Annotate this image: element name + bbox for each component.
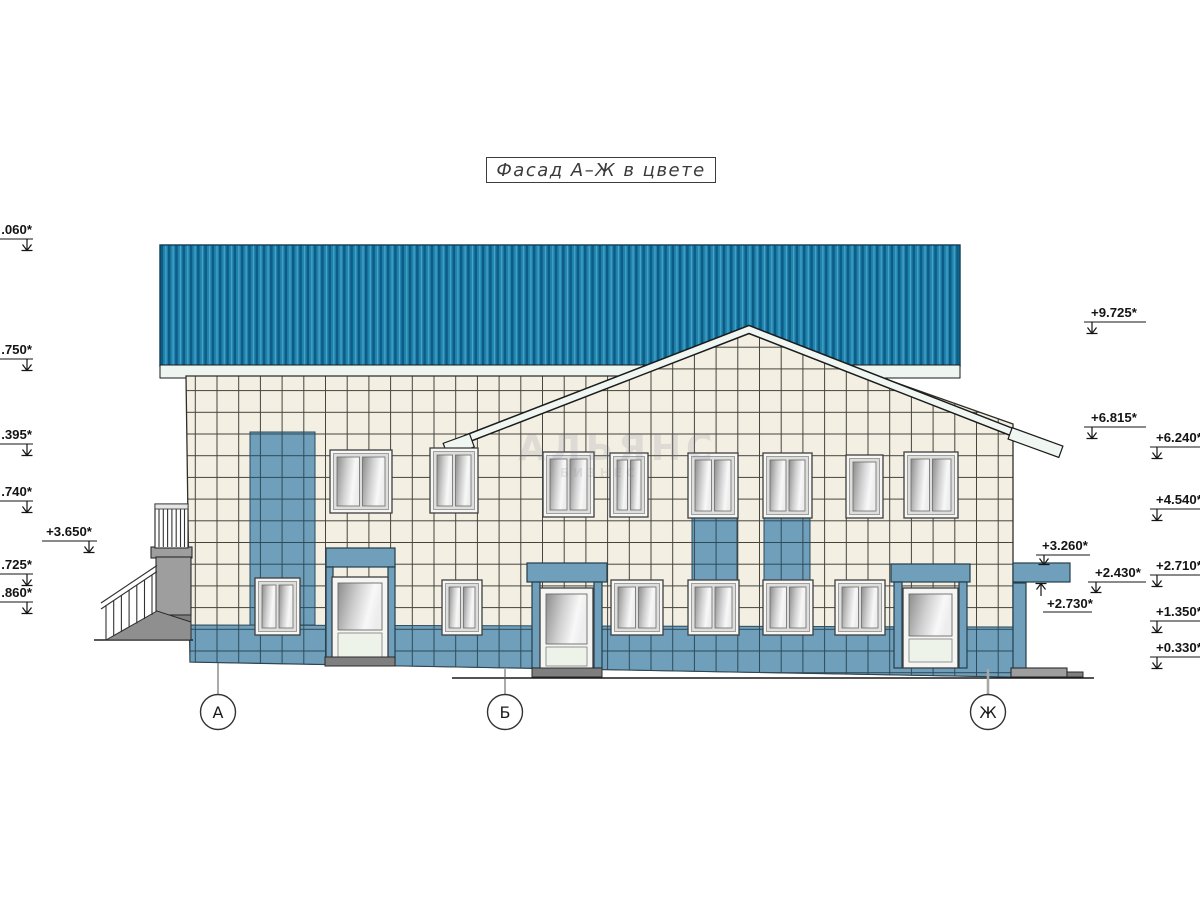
blue-strip-under-window-2 xyxy=(764,518,810,580)
elevation-marker-left-3: .395* xyxy=(0,427,33,456)
drawing-title-text: Фасад А–Ж в цвете xyxy=(496,160,705,181)
entrance-stairs-left xyxy=(94,504,193,640)
svg-text:+2.430*: +2.430* xyxy=(1095,565,1142,580)
elevation-marker-6815: +6.815* xyxy=(1084,410,1146,439)
elevation-marker-2730: +2.730* xyxy=(1036,584,1094,613)
elevation-marker-0330: +0.330* xyxy=(1150,640,1200,669)
rear-roof xyxy=(160,245,960,378)
window xyxy=(330,450,392,513)
elevation-marker-2710: +2.710* xyxy=(1150,558,1200,587)
svg-text:.060*: .060* xyxy=(1,222,33,237)
entrance-door-center xyxy=(540,588,593,672)
svg-text:+3.650*: +3.650* xyxy=(46,524,93,539)
window xyxy=(610,453,648,517)
ground-window xyxy=(763,580,813,635)
door-post xyxy=(894,582,902,668)
elevation-marker-2430: +2.430* xyxy=(1088,565,1146,593)
elevation-marker-left-1: .060* xyxy=(0,222,33,251)
ground-window xyxy=(611,580,663,635)
porch-landing-slab xyxy=(151,547,192,558)
ground-window xyxy=(688,580,739,635)
window xyxy=(763,453,812,518)
ground-window xyxy=(255,578,300,635)
svg-text:.395*: .395* xyxy=(1,427,33,442)
ground-window xyxy=(835,580,885,635)
svg-text:+6.815*: +6.815* xyxy=(1091,410,1138,425)
svg-text:.750*: .750* xyxy=(1,342,33,357)
door-post xyxy=(388,567,395,662)
facade-elevation-drawing: А Б Ж .060* .750* .395* .740* +3.650* .7… xyxy=(0,0,1200,900)
svg-text:Ж: Ж xyxy=(979,703,996,722)
door-post xyxy=(594,582,602,668)
elevation-marker-4540: +4.540* xyxy=(1150,492,1200,521)
corner-pilaster xyxy=(1013,583,1026,670)
elevation-marker-3650: +3.650* xyxy=(42,524,97,553)
drawing-title: Фасад А–Ж в цвете xyxy=(486,157,716,183)
ground-window xyxy=(442,580,482,635)
svg-text:.725*: .725* xyxy=(1,557,33,572)
elevation-marker-left-2: .750* xyxy=(0,342,33,371)
entrance-door-left xyxy=(332,577,388,663)
door-threshold xyxy=(532,668,602,677)
elevation-marker-9725: +9.725* xyxy=(1084,305,1146,334)
stair-railing-upper xyxy=(155,504,188,548)
svg-text:+1.350*: +1.350* xyxy=(1156,604,1200,619)
gable-eave-right-tip xyxy=(1008,428,1063,458)
window xyxy=(430,448,478,513)
elevation-marker-3260: +3.260* xyxy=(1036,538,1090,565)
elevation-marker-left-6: .725* xyxy=(0,557,33,586)
canopy-right xyxy=(1013,563,1070,582)
elevation-marker-left-4: .740* xyxy=(0,484,33,513)
ramp-right xyxy=(1011,668,1083,677)
svg-text:+2.730*: +2.730* xyxy=(1047,596,1094,611)
window xyxy=(688,453,738,518)
window xyxy=(904,452,958,518)
sign-band-right xyxy=(891,564,970,582)
svg-text:.860*: .860* xyxy=(1,585,33,600)
svg-text:Б: Б xyxy=(500,703,511,722)
svg-text:+4.540*: +4.540* xyxy=(1156,492,1200,507)
svg-text:+2.710*: +2.710* xyxy=(1156,558,1200,573)
elevation-marker-left-7: .860* xyxy=(0,585,33,614)
door-threshold xyxy=(325,657,395,666)
entrance-door-right xyxy=(903,588,958,668)
svg-text:А: А xyxy=(213,703,224,722)
sign-band-left xyxy=(326,548,395,567)
svg-text:+3.260*: +3.260* xyxy=(1042,538,1089,553)
elevation-marker-6240: +6.240* xyxy=(1150,430,1200,459)
blue-strip-under-window-1 xyxy=(692,518,737,580)
window-single xyxy=(846,455,883,518)
door-post xyxy=(959,582,967,668)
door-post xyxy=(532,582,540,668)
svg-text:+9.725*: +9.725* xyxy=(1091,305,1138,320)
svg-text:.740*: .740* xyxy=(1,484,33,499)
elevation-marker-1350: +1.350* xyxy=(1150,604,1200,633)
axis-bubble-a: А xyxy=(201,663,236,730)
canopy-center xyxy=(527,563,607,582)
window xyxy=(543,452,594,517)
svg-text:+6.240*: +6.240* xyxy=(1156,430,1200,445)
svg-text:+0.330*: +0.330* xyxy=(1156,640,1200,655)
porch-body xyxy=(156,557,191,615)
